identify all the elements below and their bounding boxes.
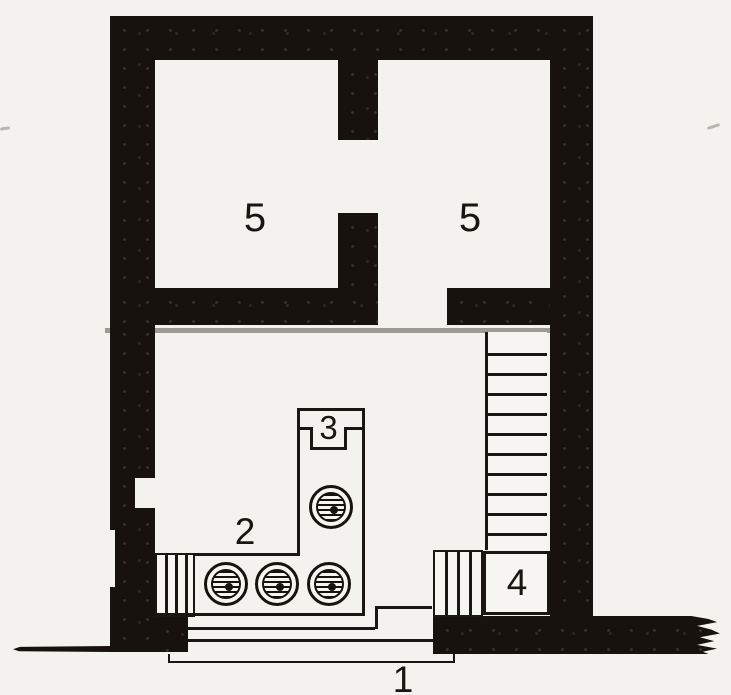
bench-steps-hatch-line	[175, 555, 178, 615]
left-wall	[110, 16, 155, 652]
terrace-step-line-2	[188, 639, 433, 642]
label-terrace: 1	[380, 660, 426, 695]
label-room-2: 2	[220, 512, 270, 552]
stair-tread	[488, 533, 547, 536]
hearth-tab-bottom	[310, 447, 347, 450]
top-wall	[110, 16, 593, 60]
pithos-upper	[309, 485, 353, 529]
cross-wall-left	[110, 288, 378, 325]
hearth-bottom-right-seg	[344, 427, 365, 430]
bench-top-edge	[193, 553, 300, 556]
label-room-3: 3	[310, 410, 347, 445]
landing-hatch-line	[457, 552, 460, 615]
stair-tread	[488, 493, 547, 496]
room-5-right	[378, 60, 550, 287]
landing-hatch-line	[445, 552, 448, 615]
wall-niche	[135, 478, 155, 508]
side-step-vertical	[375, 606, 378, 629]
bench-steps	[155, 553, 195, 617]
edge-mark-left	[0, 126, 10, 130]
staircase	[485, 332, 547, 550]
bottom-wall-band	[433, 616, 720, 654]
label-room-5-left: 5	[225, 196, 285, 240]
stair-tread	[488, 393, 547, 396]
room-4-landing	[433, 550, 483, 617]
pithos-center-dot	[330, 506, 338, 514]
cross-wall-right	[447, 288, 550, 325]
platform-left-edge	[297, 408, 300, 556]
pithos-left	[204, 562, 248, 606]
pithos-center-dot	[225, 583, 233, 591]
floor-plan: 5 5 2 3 4 1	[0, 0, 731, 695]
platform-right-edge	[362, 408, 365, 616]
stair-tread	[488, 513, 547, 516]
stair-tread	[488, 433, 547, 436]
stair-tread	[488, 353, 547, 356]
pithos-right	[307, 562, 351, 606]
pithos-center-dot	[276, 583, 284, 591]
partition-stub-upper	[338, 60, 378, 140]
label-room-5-right: 5	[440, 196, 500, 240]
label-room-4: 4	[494, 563, 540, 603]
edge-mark-right	[707, 123, 720, 130]
stair-tread	[488, 413, 547, 416]
doorway-upper-rooms	[338, 140, 378, 213]
pithos-middle	[255, 562, 299, 606]
terrace-step-line-1	[188, 627, 375, 630]
partition-stub-lower	[338, 213, 378, 288]
stair-tread	[488, 373, 547, 376]
side-step-horizontal	[375, 606, 432, 609]
right-wall	[550, 16, 593, 616]
stair-tread	[488, 473, 547, 476]
room-5-left	[155, 60, 338, 288]
bench-steps-hatch-line	[165, 555, 168, 615]
landing-hatch-line	[469, 552, 472, 615]
stair-tread	[488, 453, 547, 456]
steps-end-block	[153, 617, 188, 652]
ground-line-left	[13, 646, 111, 652]
bench-bottom-edge	[157, 613, 365, 616]
doorway-court	[378, 288, 447, 325]
pithos-center-dot	[328, 583, 336, 591]
bench-steps-hatch-line	[185, 555, 188, 615]
wall-outer-indent	[110, 530, 115, 587]
